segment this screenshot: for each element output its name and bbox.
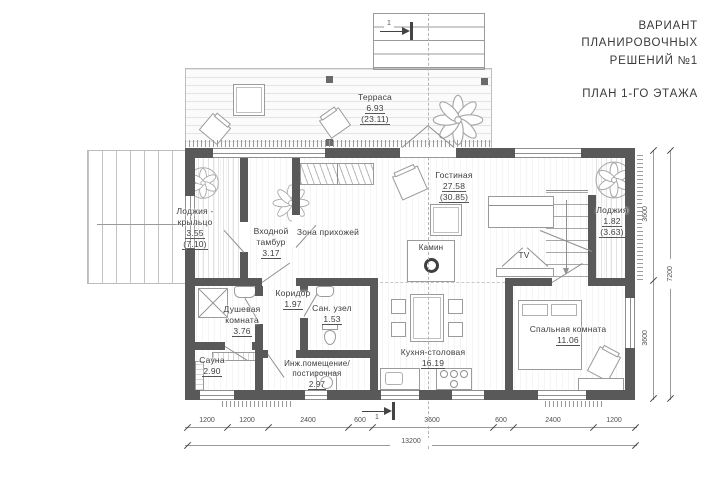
sofa-back-line bbox=[489, 205, 553, 206]
wall-shower-corridor bbox=[255, 286, 263, 296]
room-area: 2.97 bbox=[308, 380, 326, 391]
hatch-strip bbox=[545, 401, 603, 407]
dim-label: 2400 bbox=[288, 417, 328, 425]
loggia-porch-label: Лоджия - крыльцо 3.55 (7.10) bbox=[158, 206, 232, 250]
stove bbox=[436, 368, 472, 390]
dim-label: 3600 bbox=[412, 417, 452, 425]
section-mark-label: 1 bbox=[372, 414, 382, 422]
wall-bedroom-top bbox=[505, 278, 552, 286]
hatch-strip bbox=[222, 401, 292, 407]
wall-utility-top bbox=[296, 350, 378, 358]
sauna-label: Сауна 2.90 bbox=[189, 355, 235, 377]
window bbox=[305, 390, 327, 400]
dim-label: 3600 bbox=[642, 323, 650, 353]
dim-label: 600 bbox=[483, 417, 519, 425]
wall-shower-sauna bbox=[185, 342, 225, 350]
room-area: 1.82 bbox=[602, 216, 621, 227]
room-name: Терраса bbox=[325, 92, 425, 103]
room-name: постирочная bbox=[258, 369, 376, 379]
room-area: 1.97 bbox=[283, 299, 302, 310]
section-mark-label: 1 bbox=[384, 20, 394, 28]
room-area-total: (7.10) bbox=[182, 239, 207, 250]
kitchen-living-boundary bbox=[375, 282, 505, 283]
room-name: Сауна bbox=[189, 355, 235, 366]
wall-kitchen-bedroom bbox=[505, 286, 513, 390]
dimension-line bbox=[653, 150, 654, 400]
sofa bbox=[488, 196, 554, 228]
room-name: Спальная комната bbox=[524, 324, 612, 335]
window bbox=[515, 148, 581, 158]
stair-arrow-line bbox=[566, 200, 567, 270]
floor-plan-canvas: ВАРИАНТ ПЛАНИРОВОЧНЫХ РЕШЕНИЙ №1 ПЛАН 1-… bbox=[0, 0, 710, 502]
room-area: 6.93 bbox=[365, 103, 384, 114]
window bbox=[538, 390, 586, 400]
wall-bedroom-top bbox=[588, 278, 635, 286]
dim-label: 3600 bbox=[642, 199, 650, 229]
wall-shower-sauna bbox=[252, 342, 263, 350]
pillow bbox=[522, 304, 548, 316]
section-marker-line bbox=[362, 411, 386, 412]
dim-tick bbox=[632, 442, 639, 449]
room-area: 3.55 bbox=[185, 228, 204, 239]
wall-vestibule-hall bbox=[292, 158, 300, 215]
section-arrow-icon bbox=[384, 407, 392, 415]
dim-label: 1200 bbox=[594, 417, 634, 425]
room-area: 3.76 bbox=[232, 326, 251, 337]
window bbox=[452, 390, 484, 400]
wc-label: Сан. узел 1.53 bbox=[306, 303, 358, 325]
dim-tick bbox=[650, 395, 657, 402]
wall-right bbox=[625, 148, 635, 400]
room-name: Коридор bbox=[266, 288, 320, 299]
dim-total-label: 7200 bbox=[667, 259, 675, 289]
tv-console bbox=[496, 268, 554, 277]
window bbox=[213, 148, 325, 158]
terrace-label: Терраса 6.93 (23.11) bbox=[325, 92, 425, 125]
room-name: Зона прихожей bbox=[285, 227, 371, 238]
room-area: 3.17 bbox=[261, 248, 280, 259]
dim-tick bbox=[667, 395, 674, 402]
dining-chair bbox=[448, 299, 463, 314]
column-marker bbox=[326, 76, 333, 83]
burner-icon bbox=[450, 380, 458, 388]
dim-label: 1200 bbox=[187, 417, 227, 425]
kitchen-label: Кухня-столовая 16.19 bbox=[386, 347, 480, 369]
room-name: Гостиная bbox=[418, 170, 490, 181]
section-marker-bar bbox=[410, 22, 413, 40]
wall-mid-left bbox=[296, 278, 378, 286]
hatch-strip bbox=[185, 140, 490, 147]
room-area: 1.53 bbox=[322, 314, 341, 325]
dim-label: 2400 bbox=[533, 417, 573, 425]
living-label: Гостиная 27.58 (30.85) bbox=[418, 170, 490, 203]
room-area-total: (23.11) bbox=[360, 114, 390, 125]
room-area: 11.06 bbox=[556, 335, 580, 346]
window bbox=[625, 298, 635, 348]
dimension-line bbox=[185, 427, 637, 428]
kitchen-sink-basin bbox=[385, 372, 403, 385]
room-name: Лоджия - крыльцо bbox=[158, 206, 232, 228]
fireplace-flue-icon bbox=[424, 258, 439, 273]
dim-label: 1200 bbox=[227, 417, 267, 425]
wall-porch-vestibule bbox=[240, 158, 248, 222]
window bbox=[381, 390, 419, 400]
terrace-table bbox=[233, 84, 265, 116]
room-name: Лоджия bbox=[593, 205, 631, 216]
dim-total-label: 13200 bbox=[390, 438, 432, 446]
section-line bbox=[428, 13, 429, 449]
wall-mid-left bbox=[185, 278, 262, 286]
bedroom-label: Спальная комната 11.06 bbox=[524, 324, 612, 346]
room-name: Сан. узел bbox=[306, 303, 358, 314]
stair-landing-line bbox=[546, 190, 588, 191]
room-area-total: (3.63) bbox=[599, 227, 624, 238]
dining-table bbox=[410, 294, 444, 342]
dining-chair bbox=[391, 299, 406, 314]
title-line: РЕШЕНИЙ №1 bbox=[478, 53, 698, 70]
section-arrow-icon bbox=[402, 27, 410, 35]
title-block: ВАРИАНТ ПЛАНИРОВОЧНЫХ РЕШЕНИЙ №1 ПЛАН 1-… bbox=[478, 18, 698, 103]
coffee-table bbox=[430, 204, 462, 236]
section-marker-line bbox=[380, 31, 404, 32]
loggia-label: Лоджия 1.82 (3.63) bbox=[593, 205, 631, 238]
title-line: ВАРИАНТ bbox=[478, 18, 698, 35]
plant-icon bbox=[272, 184, 310, 222]
room-area-total: (30.85) bbox=[439, 192, 469, 203]
window bbox=[200, 390, 234, 400]
room-name: Инж.помещение/ bbox=[258, 359, 376, 369]
room-area: 2.90 bbox=[202, 366, 221, 377]
terrace-door-opening bbox=[400, 148, 456, 158]
sink bbox=[234, 286, 256, 298]
dim-tick bbox=[632, 424, 639, 431]
room-name: Кухня-столовая bbox=[386, 347, 480, 358]
plan-subtitle: ПЛАН 1-ГО ЭТАЖА bbox=[478, 86, 698, 103]
tv-label: TV bbox=[510, 250, 538, 261]
title-line: ПЛАНИРОВОЧНЫХ bbox=[478, 35, 698, 52]
room-area: 16.19 bbox=[421, 358, 445, 369]
hallway-label: Зона прихожей bbox=[285, 227, 371, 238]
fireplace-label: Камин bbox=[407, 243, 455, 253]
pillow bbox=[551, 304, 577, 316]
dining-chair bbox=[391, 322, 406, 337]
room-area: 27.58 bbox=[442, 181, 466, 192]
burner-icon bbox=[450, 370, 458, 378]
section-marker-bar bbox=[392, 402, 395, 420]
dining-chair bbox=[448, 322, 463, 337]
burner-icon bbox=[460, 370, 468, 378]
burner-icon bbox=[440, 370, 448, 378]
utility-label: Инж.помещение/ постирочная 2.97 bbox=[258, 359, 376, 390]
wardrobe-divider bbox=[337, 164, 338, 184]
plant-icon bbox=[432, 94, 484, 146]
